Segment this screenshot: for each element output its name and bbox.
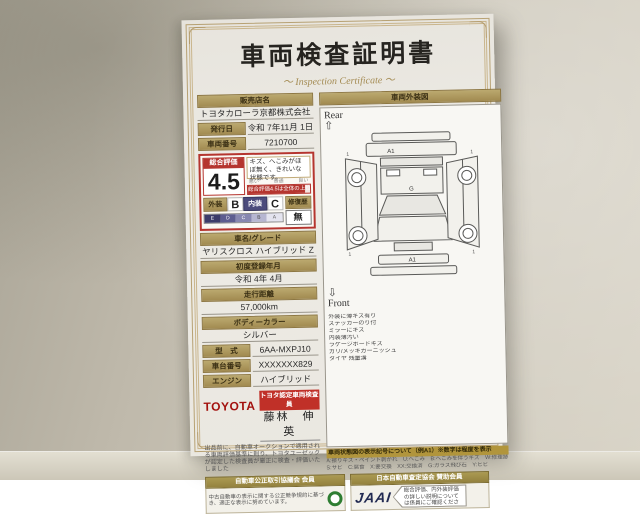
mark-front-bumper: A1	[408, 257, 416, 263]
repair-history-value: 無	[285, 210, 311, 226]
diagram-header: 車両外装図	[319, 89, 501, 106]
svg-text:1: 1	[348, 252, 351, 258]
vehicle-diagram-panel: Rear ⇧	[319, 104, 508, 448]
jaai-box: 日本自動車査定協会 賛助会員 JAAI 総合評価、内外装評価の詳しい説明について…	[350, 471, 490, 511]
columns: 販売店名 トヨタカローラ京都株式会社 発行日 令和 7年11月 1日 車両番号 …	[197, 89, 489, 474]
rating-gauge-text: 総合評価4.5は全体の上位約1%内	[248, 185, 310, 194]
mileage-field: 走行距離 57,000km	[201, 287, 317, 315]
exterior-label: 外装	[203, 197, 227, 211]
first-registration-field: 初度登録年月 令和 4年 4月	[201, 259, 317, 287]
model-value: ヤリスクロス ハイブリッド Z	[200, 244, 316, 259]
mileage-value: 57,000km	[201, 300, 317, 315]
jaai-note-callout: 総合評価、内外装評価の詳しい説明については係員にご確認ください。	[393, 484, 467, 508]
diagram-legend: 外装に薄キズ有り ステッカーのり付 ミラーにキズ 内装薄汚い ラゲージボードキズ…	[328, 311, 501, 364]
inspector-badge: トヨタ認定車両検査員	[259, 390, 319, 411]
interior-label: 内装	[243, 197, 267, 211]
inspection-note: 出品前に、自動車オークションで適用される車両評価基準に則り、トヨタユーゼックが認…	[204, 444, 320, 474]
fair-trade-body: 中古自動車の表示に関する公正競争規約に基づき、適正な表示に努めています。	[205, 486, 345, 514]
rating-bottom: 外装 B 内装 C E D C B A	[203, 196, 311, 227]
grade-scale-seg: B	[251, 214, 267, 222]
vehicle-number-row: 車両番号 7210700	[198, 136, 314, 151]
issue-date-label: 発行日	[198, 122, 246, 136]
mark-rear-bumper: A1	[387, 149, 395, 155]
vehicle-number-value: 7210700	[248, 136, 314, 150]
certificate-title: 車両検査証明書	[196, 32, 481, 74]
overall-rating-box: 総合評価 4.5 キズ、へこみがほぼ無く、きれいな状態です。 悪い 普通 良い	[198, 152, 315, 231]
chassis-number-row: 車台番号 XXXXXXX829	[203, 358, 319, 373]
rating-detail-cell: キズ、へこみがほぼ無く、きれいな状態です。 悪い 普通 良い 総合評価4.5は全…	[246, 156, 310, 195]
model-code-label: 型 式	[202, 344, 250, 358]
rating-score: 4.5	[204, 168, 245, 195]
chassis-number-label: 車台番号	[203, 359, 251, 373]
rating-gauge: 総合評価4.5は全体の上位約1%内	[247, 184, 311, 195]
fair-trade-emblem-icon	[327, 491, 342, 506]
svg-text:1: 1	[470, 149, 473, 155]
fair-trade-note: 中古自動車の表示に関する公正競争規約に基づき、適正な表示に努めています。	[208, 492, 325, 507]
svg-text:1: 1	[346, 152, 349, 158]
mark-roof: G	[409, 186, 414, 192]
dealer-value: トヨタカローラ京都株式会社	[197, 106, 313, 121]
svg-text:1: 1	[472, 249, 475, 255]
issue-date-row: 発行日 令和 7年11月 1日	[198, 121, 314, 136]
inspector-signature: トヨタ認定車両検査員 藤林 伸英	[259, 390, 320, 442]
toyota-logo: TOYOTA	[203, 399, 255, 414]
interior-grade: C	[267, 196, 283, 210]
symbol-note: 車両状態図の表示記号について（例A1）※数字は程度を表示 A:擦りキズ・ペイント…	[326, 446, 508, 472]
grades-row: 外装 B 内装 C	[203, 196, 283, 212]
jaai-note: 総合評価、内外装評価の詳しい説明については係員にご確認ください。	[394, 485, 466, 507]
inspector-block: TOYOTA トヨタ認定車両検査員 藤林 伸英	[203, 390, 320, 443]
body-color-field: ボディーカラー シルバー	[202, 315, 318, 343]
rating-score-cell: 総合評価 4.5	[202, 157, 245, 196]
vehicle-number-label: 車両番号	[198, 137, 246, 151]
jaai-body: JAAI 総合評価、内外装評価の詳しい説明については係員にご確認ください。	[350, 483, 490, 511]
grades-cell: 外装 B 内装 C E D C B A	[203, 196, 283, 227]
first-registration-value: 令和 4年 4月	[201, 272, 317, 287]
repair-history-cell: 修復歴 無	[285, 196, 312, 226]
inspector-name: 藤林 伸英	[260, 410, 320, 442]
engine-value: ハイブリッド	[253, 373, 319, 387]
issue-date-value: 令和 7年11月 1日	[248, 121, 314, 135]
front-direction: ⇩ Front	[328, 285, 500, 313]
chassis-number-value: XXXXXXX829	[253, 358, 319, 372]
rating-comment: キズ、へこみがほぼ無く、きれいな状態です。	[246, 156, 310, 179]
footer: 自動車公正取引協議会 会員 中古自動車の表示に関する公正競争規約に基づき、適正な…	[205, 471, 490, 514]
grade-scale-seg: D	[220, 214, 236, 222]
grade-scale-seg: C	[236, 214, 252, 222]
grade-scale-seg: A	[267, 213, 283, 221]
exterior-grade: B	[227, 197, 243, 211]
grade-scale-bar: E D C B A	[204, 212, 284, 224]
repair-history-label: 修復歴	[285, 196, 311, 210]
body-color-value: シルバー	[202, 328, 318, 343]
inspection-certificate-paper: 車両検査証明書 ～ Inspection Certificate ～ 販売店名 …	[181, 14, 502, 456]
certificate-content: 車両検査証明書 ～ Inspection Certificate ～ 販売店名 …	[196, 24, 489, 446]
car-expanded-diagram: A1 G A1 1 1 1 1	[341, 129, 482, 288]
jaai-logo: JAAI	[354, 489, 392, 506]
engine-label: エンジン	[203, 374, 251, 388]
model-field: 車名/グレード ヤリスクロス ハイブリッド Z	[200, 231, 316, 259]
left-column: 販売店名 トヨタカローラ京都株式会社 発行日 令和 7年11月 1日 車両番号 …	[197, 93, 320, 474]
model-code-row: 型 式 6AA-MXPJ10	[202, 343, 318, 358]
engine-row: エンジン ハイブリッド	[203, 373, 319, 388]
right-column: 車両外装図 Rear ⇧	[319, 89, 509, 472]
grade-scale-seg: E	[205, 215, 221, 223]
front-label: Front	[328, 295, 500, 310]
rating-top: 総合評価 4.5 キズ、へこみがほぼ無く、きれいな状態です。 悪い 普通 良い	[202, 156, 310, 196]
model-code-value: 6AA-MXPJ10	[252, 343, 318, 357]
